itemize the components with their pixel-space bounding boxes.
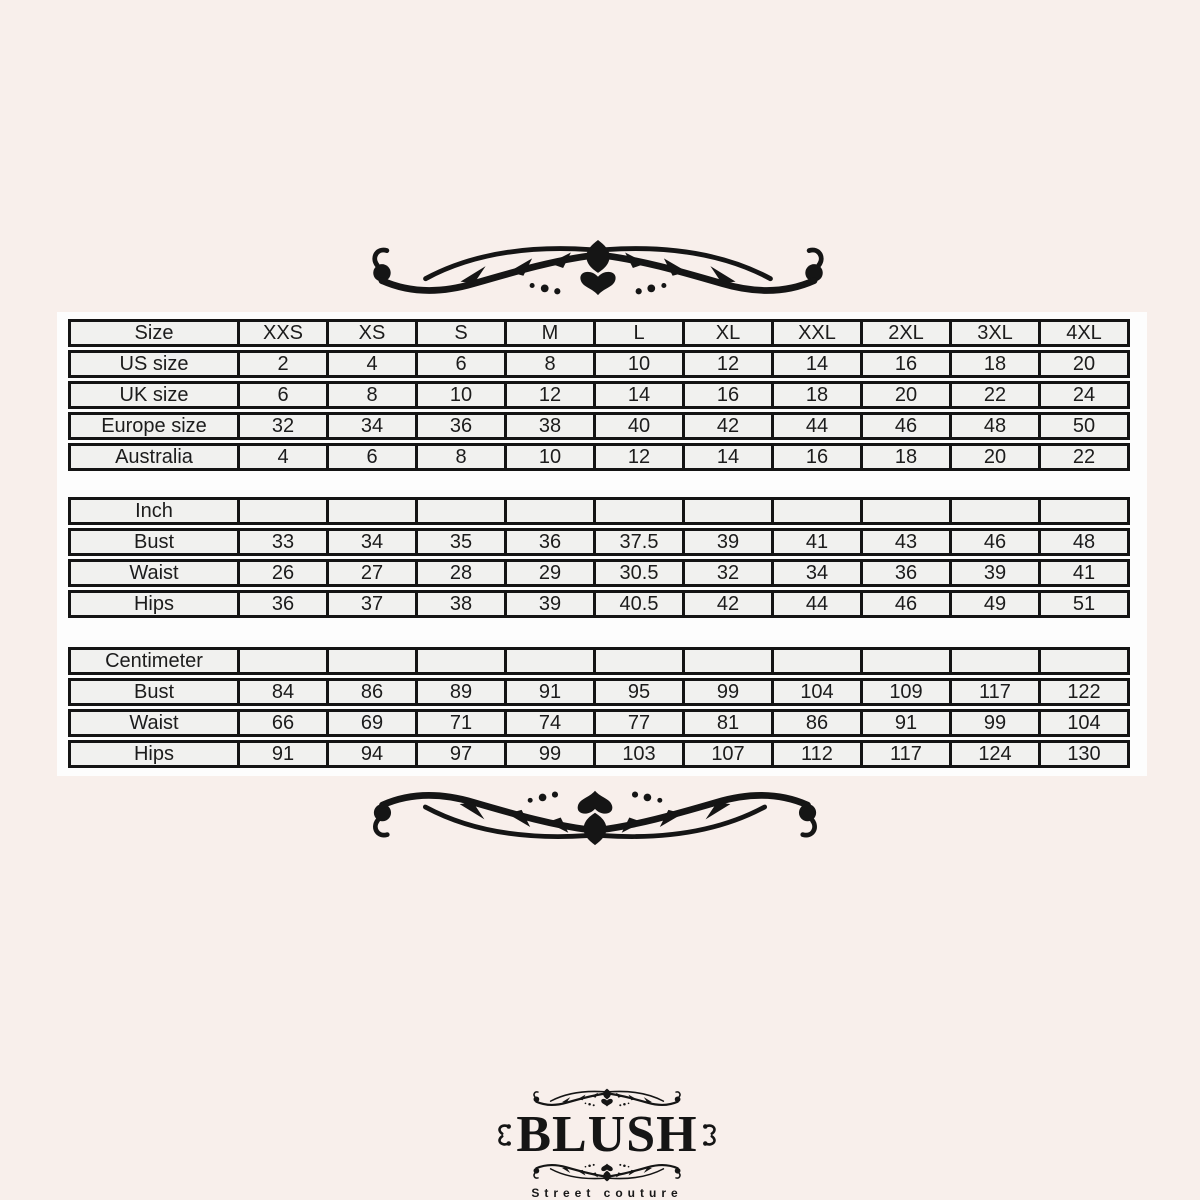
- value-cell: 8: [418, 443, 507, 471]
- value-cell: 36: [863, 559, 952, 587]
- value-cell: 18: [863, 443, 952, 471]
- size-chart-panel: SizeXXSXSSMLXLXXL2XL3XL4XLUS size2468101…: [57, 312, 1147, 776]
- value-cell: [1041, 497, 1130, 525]
- value-cell: 69: [329, 709, 418, 737]
- value-cell: [507, 647, 596, 675]
- bottom-flourish-icon: [360, 786, 830, 847]
- value-cell: L: [596, 319, 685, 347]
- value-cell: 18: [952, 350, 1041, 378]
- table-row: Bust3334353637.53941434648: [68, 528, 1130, 556]
- value-cell: [329, 497, 418, 525]
- table-row: Waist666971747781869199104: [68, 709, 1130, 737]
- value-cell: 29: [507, 559, 596, 587]
- value-cell: 36: [240, 590, 329, 618]
- value-cell: 74: [507, 709, 596, 737]
- table-row: Hips91949799103107112117124130: [68, 740, 1130, 768]
- value-cell: 14: [774, 350, 863, 378]
- row-label-cell: Size: [68, 319, 240, 347]
- value-cell: 20: [1041, 350, 1130, 378]
- value-cell: 12: [596, 443, 685, 471]
- value-cell: 12: [685, 350, 774, 378]
- value-cell: 34: [329, 528, 418, 556]
- value-cell: 103: [596, 740, 685, 768]
- centimeter-measurements-table: CentimeterBust848689919599104109117122Wa…: [68, 644, 1130, 771]
- value-cell: 48: [1041, 528, 1130, 556]
- value-cell: 91: [507, 678, 596, 706]
- value-cell: 81: [685, 709, 774, 737]
- value-cell: [685, 497, 774, 525]
- top-flourish-icon: [362, 238, 834, 300]
- value-cell: 39: [507, 590, 596, 618]
- value-cell: 34: [774, 559, 863, 587]
- row-label-cell: Australia: [68, 443, 240, 471]
- value-cell: 10: [507, 443, 596, 471]
- value-cell: 33: [240, 528, 329, 556]
- value-cell: 18: [774, 381, 863, 409]
- value-cell: 41: [1041, 559, 1130, 587]
- value-cell: 104: [1041, 709, 1130, 737]
- brand-logo: BLUSH Street couture: [487, 1088, 727, 1200]
- value-cell: 32: [240, 412, 329, 440]
- row-label-cell: Inch: [68, 497, 240, 525]
- value-cell: 16: [685, 381, 774, 409]
- value-cell: 14: [596, 381, 685, 409]
- value-cell: [507, 497, 596, 525]
- value-cell: 95: [596, 678, 685, 706]
- value-cell: 34: [329, 412, 418, 440]
- value-cell: 71: [418, 709, 507, 737]
- value-cell: 2: [240, 350, 329, 378]
- value-cell: 22: [1041, 443, 1130, 471]
- value-cell: 51: [1041, 590, 1130, 618]
- value-cell: 30.5: [596, 559, 685, 587]
- value-cell: 6: [418, 350, 507, 378]
- value-cell: 94: [329, 740, 418, 768]
- value-cell: 10: [596, 350, 685, 378]
- value-cell: 41: [774, 528, 863, 556]
- value-cell: 24: [1041, 381, 1130, 409]
- table-row: SizeXXSXSSMLXLXXL2XL3XL4XL: [68, 319, 1130, 347]
- row-label-cell: Centimeter: [68, 647, 240, 675]
- value-cell: M: [507, 319, 596, 347]
- value-cell: [418, 497, 507, 525]
- value-cell: 16: [774, 443, 863, 471]
- value-cell: 20: [952, 443, 1041, 471]
- value-cell: 89: [418, 678, 507, 706]
- value-cell: 122: [1041, 678, 1130, 706]
- value-cell: [952, 647, 1041, 675]
- value-cell: [1041, 647, 1130, 675]
- value-cell: [596, 497, 685, 525]
- value-cell: 42: [685, 412, 774, 440]
- value-cell: 97: [418, 740, 507, 768]
- row-label-cell: Bust: [68, 678, 240, 706]
- row-label-cell: Hips: [68, 590, 240, 618]
- value-cell: 46: [863, 590, 952, 618]
- value-cell: 16: [863, 350, 952, 378]
- value-cell: 44: [774, 412, 863, 440]
- row-label-cell: Waist: [68, 709, 240, 737]
- value-cell: [240, 497, 329, 525]
- right-swirl-icon: [702, 1115, 719, 1155]
- value-cell: 66: [240, 709, 329, 737]
- table-row: Australia46810121416182022: [68, 443, 1130, 471]
- logo-top-band-icon: [531, 1088, 683, 1108]
- value-cell: 6: [240, 381, 329, 409]
- value-cell: [596, 647, 685, 675]
- value-cell: 2XL: [863, 319, 952, 347]
- value-cell: 49: [952, 590, 1041, 618]
- value-cell: 28: [418, 559, 507, 587]
- value-cell: 99: [685, 678, 774, 706]
- value-cell: 86: [774, 709, 863, 737]
- value-cell: 3XL: [952, 319, 1041, 347]
- value-cell: 42: [685, 590, 774, 618]
- value-cell: 130: [1041, 740, 1130, 768]
- value-cell: [685, 647, 774, 675]
- value-cell: 86: [329, 678, 418, 706]
- value-cell: S: [418, 319, 507, 347]
- value-cell: 50: [1041, 412, 1130, 440]
- value-cell: 107: [685, 740, 774, 768]
- table-row: Waist2627282930.53234363941: [68, 559, 1130, 587]
- brand-tagline: Street couture: [531, 1186, 682, 1200]
- value-cell: 27: [329, 559, 418, 587]
- value-cell: 109: [863, 678, 952, 706]
- table-row: Hips3637383940.54244464951: [68, 590, 1130, 618]
- value-cell: 40: [596, 412, 685, 440]
- table-row: Europe size32343638404244464850: [68, 412, 1130, 440]
- row-label-cell: Waist: [68, 559, 240, 587]
- value-cell: 4: [329, 350, 418, 378]
- value-cell: 117: [952, 678, 1041, 706]
- row-label-cell: Europe size: [68, 412, 240, 440]
- row-label-cell: Hips: [68, 740, 240, 768]
- value-cell: 46: [952, 528, 1041, 556]
- value-cell: 38: [418, 590, 507, 618]
- value-cell: [863, 647, 952, 675]
- value-cell: [240, 647, 329, 675]
- value-cell: [863, 497, 952, 525]
- value-cell: 112: [774, 740, 863, 768]
- value-cell: [774, 647, 863, 675]
- value-cell: 46: [863, 412, 952, 440]
- value-cell: 39: [685, 528, 774, 556]
- value-cell: XXS: [240, 319, 329, 347]
- table-row: Bust848689919599104109117122: [68, 678, 1130, 706]
- table-row: Centimeter: [68, 647, 1130, 675]
- value-cell: 35: [418, 528, 507, 556]
- value-cell: 39: [952, 559, 1041, 587]
- value-cell: 117: [863, 740, 952, 768]
- row-label-cell: Bust: [68, 528, 240, 556]
- value-cell: [774, 497, 863, 525]
- left-swirl-icon: [495, 1115, 512, 1155]
- value-cell: 12: [507, 381, 596, 409]
- table-row: US size2468101214161820: [68, 350, 1130, 378]
- value-cell: 104: [774, 678, 863, 706]
- value-cell: XXL: [774, 319, 863, 347]
- row-label-cell: UK size: [68, 381, 240, 409]
- value-cell: 26: [240, 559, 329, 587]
- value-cell: [952, 497, 1041, 525]
- value-cell: 43: [863, 528, 952, 556]
- value-cell: [418, 647, 507, 675]
- value-cell: 10: [418, 381, 507, 409]
- brand-name: BLUSH: [516, 1107, 697, 1163]
- value-cell: 124: [952, 740, 1041, 768]
- logo-bottom-band-icon: [531, 1162, 683, 1182]
- value-cell: 37.5: [596, 528, 685, 556]
- value-cell: XL: [685, 319, 774, 347]
- table-row: Inch: [68, 497, 1130, 525]
- value-cell: 77: [596, 709, 685, 737]
- value-cell: 36: [507, 528, 596, 556]
- value-cell: 91: [863, 709, 952, 737]
- value-cell: 32: [685, 559, 774, 587]
- value-cell: XS: [329, 319, 418, 347]
- value-cell: 44: [774, 590, 863, 618]
- value-cell: 91: [240, 740, 329, 768]
- value-cell: 84: [240, 678, 329, 706]
- value-cell: 48: [952, 412, 1041, 440]
- brand-row: BLUSH: [495, 1107, 718, 1163]
- value-cell: 99: [507, 740, 596, 768]
- value-cell: 40.5: [596, 590, 685, 618]
- row-label-cell: US size: [68, 350, 240, 378]
- table-row: UK size681012141618202224: [68, 381, 1130, 409]
- value-cell: 14: [685, 443, 774, 471]
- value-cell: 99: [952, 709, 1041, 737]
- value-cell: 8: [507, 350, 596, 378]
- value-cell: [329, 647, 418, 675]
- value-cell: 4XL: [1041, 319, 1130, 347]
- value-cell: 22: [952, 381, 1041, 409]
- inch-measurements-table: InchBust3334353637.53941434648Waist26272…: [68, 494, 1130, 621]
- value-cell: 6: [329, 443, 418, 471]
- size-chart-page: SizeXXSXSSMLXLXXL2XL3XL4XLUS size2468101…: [0, 0, 1200, 1200]
- value-cell: 8: [329, 381, 418, 409]
- value-cell: 37: [329, 590, 418, 618]
- value-cell: 38: [507, 412, 596, 440]
- value-cell: 4: [240, 443, 329, 471]
- value-cell: 36: [418, 412, 507, 440]
- value-cell: 20: [863, 381, 952, 409]
- size-conversion-table: SizeXXSXSSMLXLXXL2XL3XL4XLUS size2468101…: [68, 316, 1130, 474]
